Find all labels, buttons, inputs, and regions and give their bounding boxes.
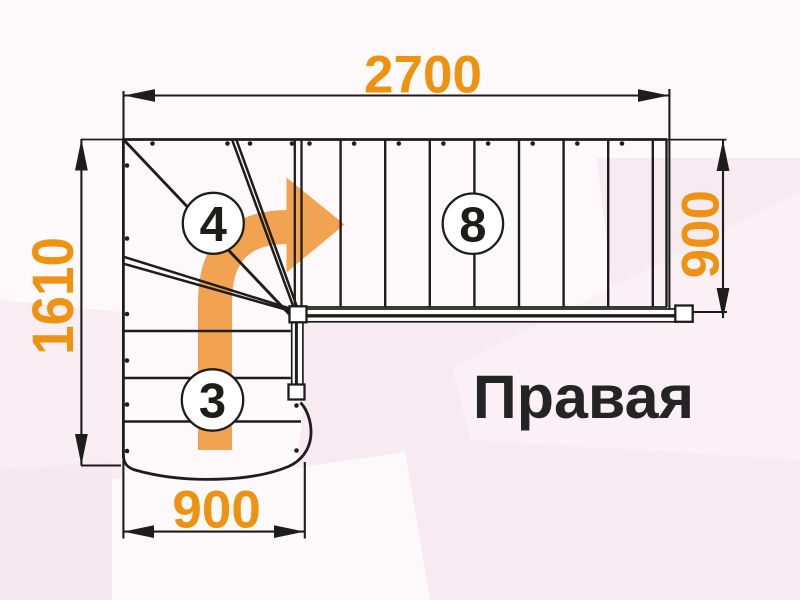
svg-text:900: 900	[172, 480, 260, 539]
svg-text:3: 3	[199, 375, 226, 429]
svg-text:1610: 1610	[21, 237, 86, 355]
svg-text:8: 8	[459, 198, 486, 252]
svg-text:2700: 2700	[364, 46, 482, 105]
svg-text:Правая: Правая	[473, 363, 694, 431]
svg-text:900: 900	[671, 190, 730, 278]
svg-text:4: 4	[200, 198, 227, 252]
